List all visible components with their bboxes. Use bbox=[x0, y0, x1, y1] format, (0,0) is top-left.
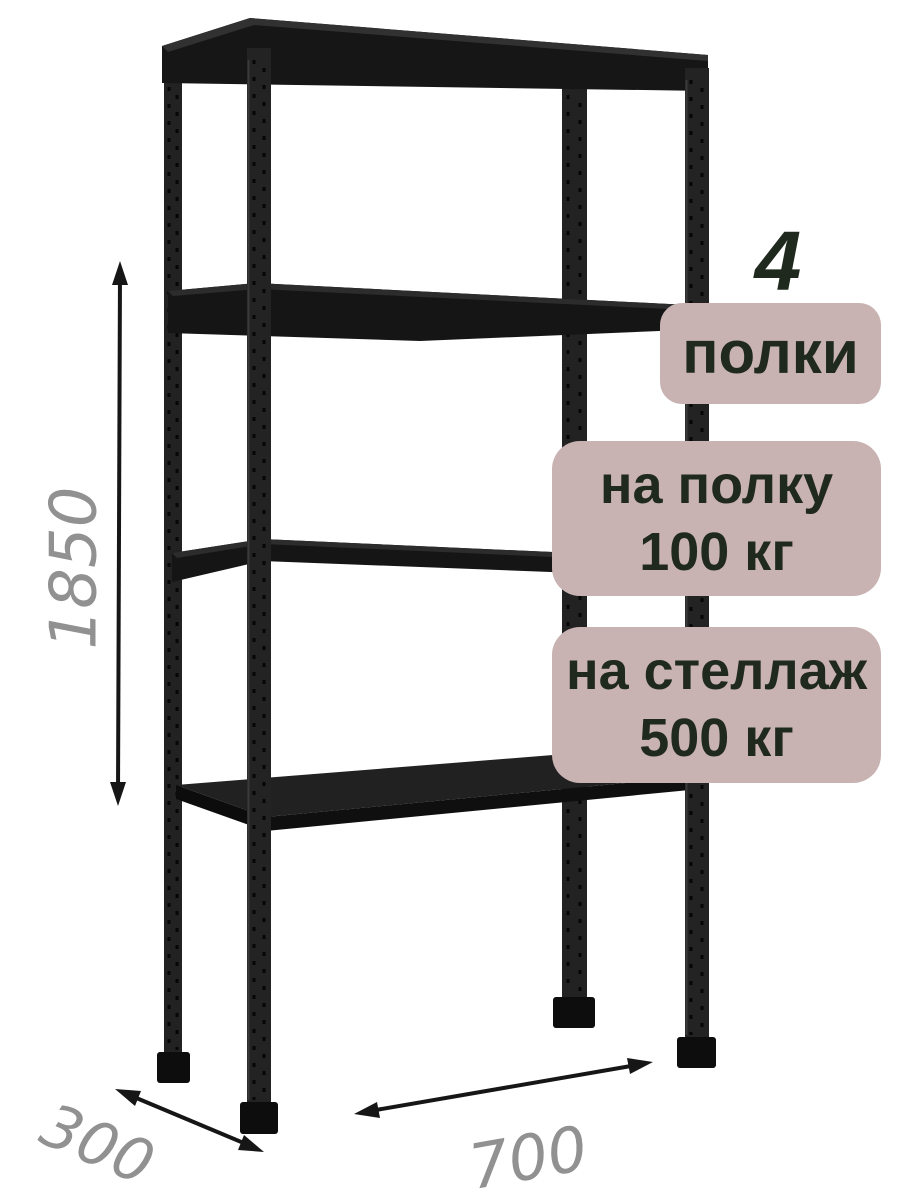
arrow-down-icon bbox=[110, 782, 126, 806]
foot-back-left bbox=[157, 1052, 190, 1083]
per-rack-load-line1: на стеллаж bbox=[566, 638, 867, 705]
per-rack-load-line2: 500 кг bbox=[639, 705, 794, 772]
width-value: 700 bbox=[464, 1111, 593, 1200]
product-image: 1850 300 700 4 полки на полку 100 кг на … bbox=[0, 0, 900, 1200]
shelf-count-label: полки bbox=[682, 316, 858, 390]
post-front-left bbox=[247, 48, 271, 1106]
shelf-count-badge: полки bbox=[660, 303, 881, 404]
per-shelf-load-line2: 100 кг bbox=[639, 519, 794, 586]
arrow-left-icon bbox=[354, 1102, 380, 1118]
foot-front-right bbox=[677, 1037, 716, 1068]
height-dimension: 1850 bbox=[38, 261, 128, 806]
per-shelf-load-badge: на полку 100 кг bbox=[552, 441, 881, 596]
arrow-upleft-icon bbox=[115, 1089, 141, 1106]
foot-back-right bbox=[553, 997, 595, 1028]
width-dimension: 700 bbox=[354, 1058, 653, 1200]
arrow-up-icon bbox=[112, 261, 128, 285]
depth-value: 300 bbox=[31, 1090, 164, 1199]
shelf-top bbox=[162, 18, 708, 91]
height-value: 1850 bbox=[38, 487, 112, 650]
depth-dimension: 300 bbox=[31, 1089, 264, 1199]
shelving-rack-render: 1850 300 700 bbox=[0, 0, 900, 1200]
foot-front-left bbox=[240, 1102, 278, 1134]
shelf-count-number: 4 bbox=[736, 218, 820, 304]
per-shelf-load-line1: на полку bbox=[600, 452, 833, 519]
arrow-downright-icon bbox=[238, 1135, 264, 1152]
per-rack-load-badge: на стеллаж 500 кг bbox=[552, 627, 881, 783]
arrow-right-icon bbox=[627, 1058, 653, 1074]
